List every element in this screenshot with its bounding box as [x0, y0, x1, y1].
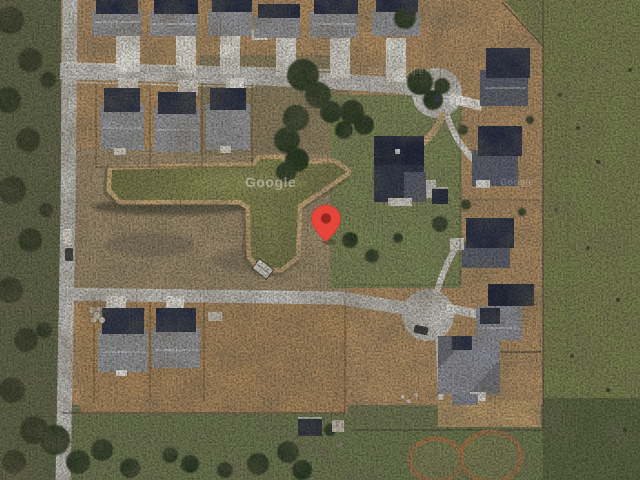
location-pin[interactable] [0, 0, 640, 480]
pin-inner-dot [321, 213, 331, 223]
map-viewport[interactable]: Google Google 2022 Google [0, 0, 640, 480]
